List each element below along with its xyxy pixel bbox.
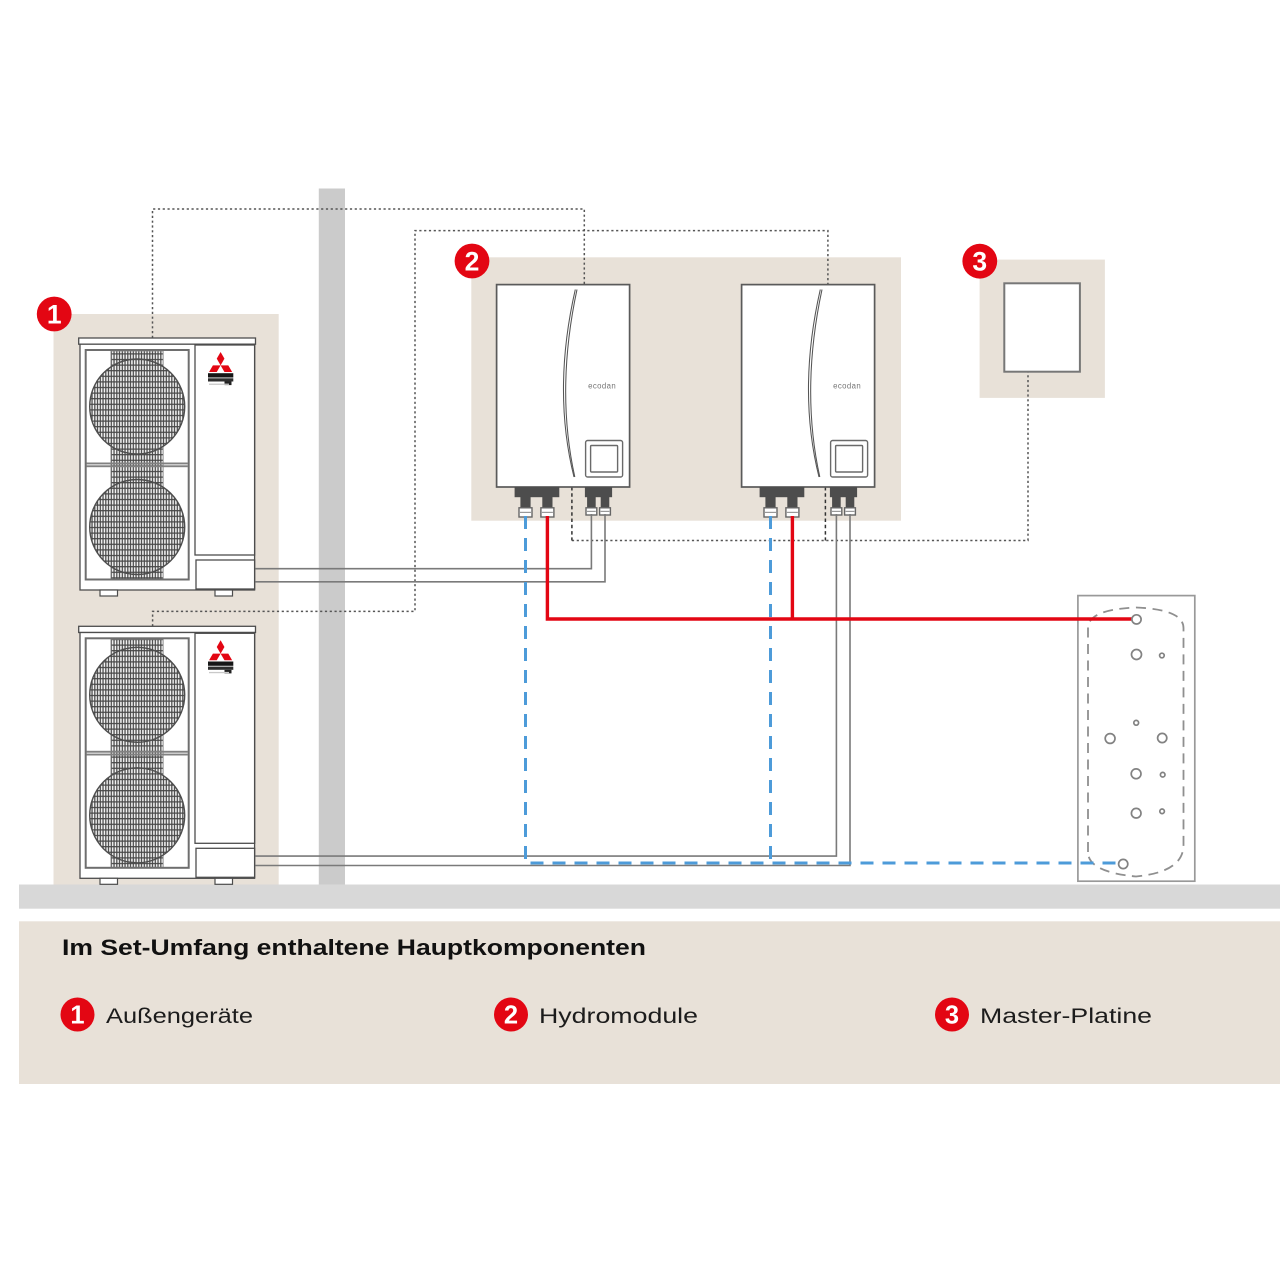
svg-text:2: 2 — [504, 1002, 518, 1030]
svg-text:3: 3 — [972, 247, 987, 277]
svg-text:ecodan: ecodan — [588, 382, 616, 391]
svg-text:Außengeräte: Außengeräte — [106, 1004, 253, 1028]
svg-text:2: 2 — [465, 247, 480, 277]
svg-text:1: 1 — [70, 1002, 84, 1030]
svg-text:Hydromodule: Hydromodule — [539, 1004, 698, 1028]
svg-text:ecodan: ecodan — [833, 382, 861, 391]
svg-text:1: 1 — [47, 300, 62, 330]
svg-text:Im Set-Umfang enthaltene Haupt: Im Set-Umfang enthaltene Hauptkomponente… — [62, 935, 646, 960]
svg-text:3: 3 — [945, 1002, 959, 1030]
svg-text:Master-Platine: Master-Platine — [980, 1004, 1152, 1028]
